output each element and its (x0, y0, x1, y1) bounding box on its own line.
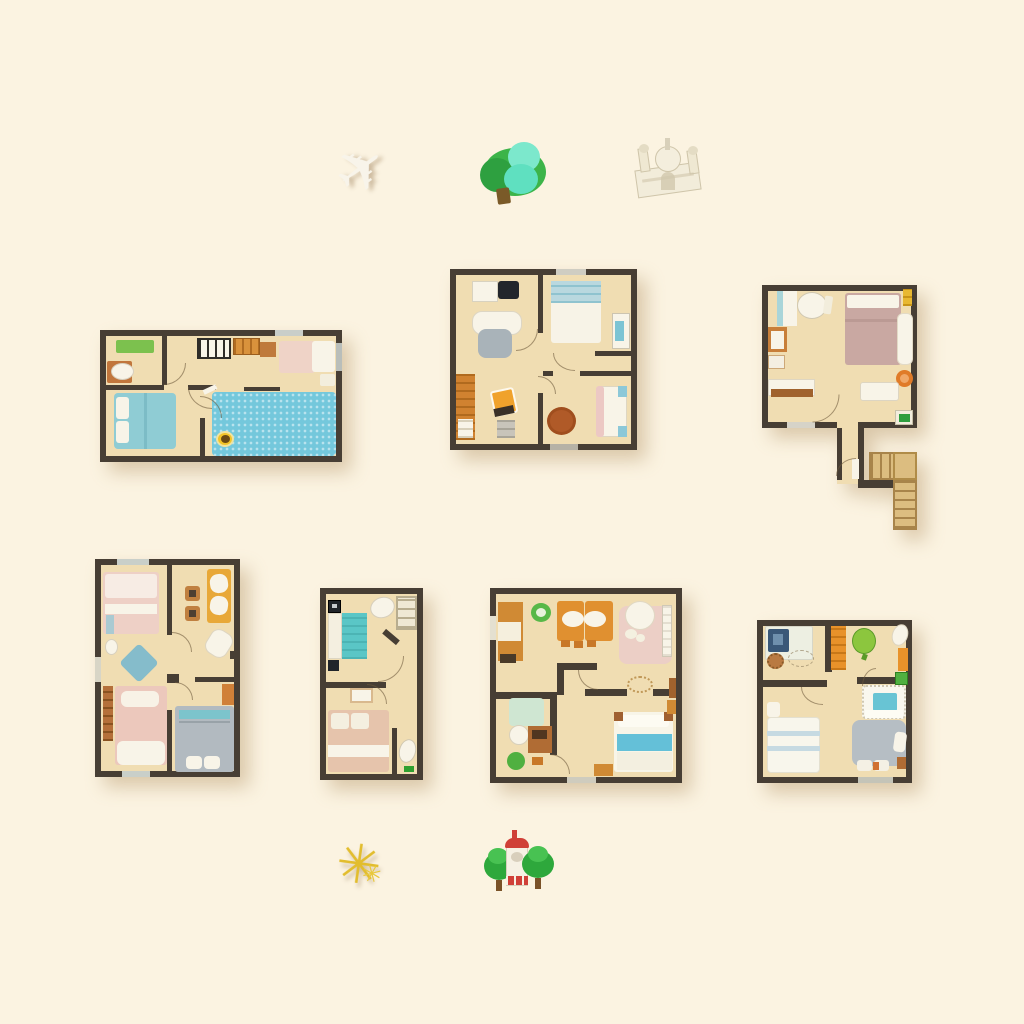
wall-top (490, 588, 682, 594)
tree-icon-trunk (496, 187, 511, 205)
bed-top-pillow (105, 574, 157, 598)
bed-pink (279, 341, 315, 373)
stool-1-mark (189, 590, 196, 597)
round-table (625, 601, 655, 630)
nightstand (594, 764, 613, 776)
desk (472, 281, 498, 302)
plan-5-narrow-studio (320, 588, 423, 780)
stool-gray (497, 420, 515, 438)
shower-stripe (777, 291, 783, 326)
village-icon-tree-right-top (528, 846, 548, 862)
wall-hall-c (244, 387, 280, 391)
plan-4-tall-two-bedroom (95, 559, 240, 777)
bath-stool (532, 757, 543, 765)
wall-divider-bottom (167, 710, 172, 771)
bath-desk-items (532, 730, 547, 739)
wall-mid-b (580, 371, 631, 376)
bed-bl-foot (117, 741, 165, 765)
bed-bl-pillow (121, 691, 159, 707)
nightstand (897, 757, 906, 769)
village-icon-flag (512, 830, 517, 839)
cabinet-left-shelf (498, 622, 521, 641)
village-icon-roof (505, 838, 529, 848)
cabinet-left-base (500, 654, 516, 663)
plan-7-square-studio (757, 620, 912, 783)
village-icon-tree-left-top (488, 848, 508, 864)
green-ball (507, 752, 525, 770)
bed-bl (767, 717, 820, 773)
sofa-gray (478, 329, 512, 358)
window-bottom (858, 777, 893, 783)
toilet (111, 363, 134, 380)
rug-brown (767, 653, 784, 669)
wall-mid-v (557, 663, 564, 695)
sketch-scribble (788, 650, 814, 667)
wall-top (320, 588, 423, 594)
bed-br-line (179, 721, 230, 723)
wall-right (417, 588, 423, 780)
wall-divider-top (167, 565, 172, 635)
bed-mid-teal (873, 693, 897, 711)
dresser-2 (260, 342, 276, 357)
palace-icon-tower-dome-left (639, 144, 649, 153)
village-icon-window (511, 852, 523, 862)
wall-right (234, 559, 240, 777)
bed-br-p1 (857, 760, 872, 771)
dresser (233, 338, 260, 355)
bed-bottom-pillow-1 (331, 713, 349, 729)
wall-left (100, 330, 106, 462)
round-chair-seat (900, 374, 909, 383)
wall-top (450, 269, 637, 275)
green-mat (404, 766, 414, 772)
bed-top-band (105, 604, 157, 614)
balloon-chair (852, 628, 876, 654)
sofa-right (897, 313, 913, 365)
wall-right-h-a (585, 689, 627, 696)
wall-left (757, 620, 763, 783)
orange-right (667, 700, 676, 714)
plant (531, 603, 551, 622)
wall-divider-bottom (392, 728, 397, 774)
bed-mauve-fold (845, 319, 901, 322)
bed-teal (342, 613, 367, 659)
wall-hall-a (106, 385, 164, 390)
window-bottom (787, 422, 815, 428)
bathtub (797, 292, 827, 319)
appliance-1-dot (332, 604, 337, 608)
appliance-2 (328, 660, 339, 671)
flower-table (547, 407, 576, 435)
pool (212, 392, 336, 456)
bed-bl-stripe-1 (767, 731, 820, 736)
window-top (275, 330, 303, 336)
wall-bottom (450, 444, 637, 450)
wall-bottom (100, 456, 342, 462)
wall-right (631, 269, 637, 450)
palace-icon-spire (665, 138, 670, 150)
wall-mid-a (543, 371, 553, 376)
cabinet-right (898, 648, 908, 671)
wardrobe (197, 338, 231, 359)
bench-pillow-1 (562, 611, 584, 627)
cabinet-right (222, 684, 234, 705)
bed-br-head-1 (614, 712, 623, 721)
green-box (895, 672, 908, 685)
bed-bottom-pillow-2 (351, 713, 369, 729)
bed-br-pillows (618, 715, 669, 727)
village-icon-base-band (506, 876, 528, 885)
wall-pool-left (200, 418, 205, 456)
plan-3-l-shaped-with-stairs (757, 275, 917, 533)
floor-plans-scene: ✈✳✳ (0, 0, 1024, 1024)
window-bottom (122, 771, 150, 777)
stool-2-mark (189, 610, 196, 617)
bed-mid-strip (865, 710, 903, 718)
printer (498, 281, 519, 299)
wall-right (676, 588, 682, 783)
bed-br-pink (596, 386, 604, 437)
stairs-steps (396, 596, 417, 630)
bed-blue-pillow-2 (116, 421, 129, 443)
bed-br-orange (873, 762, 879, 770)
bath-rug-green (509, 698, 544, 726)
airplane-icon: ✈ (323, 131, 399, 209)
village-icon-trunk-left (496, 880, 502, 891)
wall-sink (105, 639, 118, 655)
stairs-landing (893, 452, 917, 480)
bath-rug (116, 340, 154, 353)
cabinet-orange-inner (771, 331, 784, 349)
yellow-cabinet (903, 289, 912, 306)
bed-br-blue-2 (618, 426, 627, 437)
bed-blue-fold (144, 393, 147, 449)
bed-br-blue-1 (618, 386, 627, 397)
wall-bottom (320, 774, 423, 780)
nightstand (320, 374, 335, 386)
tall-cabinet-white (458, 419, 473, 438)
wall-right (906, 620, 912, 783)
wall-top (100, 330, 342, 336)
bed-blue-pillow-1 (116, 397, 129, 419)
wall-divider-bottom (538, 393, 543, 444)
wall-stairs-bottom (858, 480, 893, 488)
bed-pink-pillow (312, 341, 335, 372)
wall-stub (230, 651, 234, 659)
window-top (117, 559, 149, 565)
cabinet-left (103, 686, 113, 741)
bed-br-teal (179, 710, 230, 719)
bed-top-stripe (106, 615, 114, 634)
wall-right-stub (595, 351, 631, 356)
bed-teal-pillow (328, 613, 342, 659)
bed-br-lower (617, 752, 672, 770)
white-box (768, 355, 785, 369)
shelf-base (771, 389, 813, 397)
bench-pillow-2 (584, 611, 606, 627)
bed-mauve-pillows (847, 295, 899, 308)
table (860, 382, 899, 401)
window-left (95, 657, 101, 682)
bed-bottom-band (328, 745, 389, 757)
bed-bl-pillow (767, 702, 780, 717)
bed-br-pillow-1 (186, 756, 202, 769)
wall-mid-left (763, 680, 827, 687)
bench-stool-3 (587, 640, 596, 647)
plan-6-square-two-bed (490, 588, 682, 783)
sunflower-center (221, 435, 230, 443)
round-table-bit-2 (636, 634, 645, 642)
bench-stool-1 (561, 640, 570, 647)
window-bottom (567, 777, 596, 783)
village-icon-trunk-right (535, 878, 541, 889)
window-bottom (550, 444, 578, 450)
bed-bl-stripe-2 (767, 746, 820, 751)
window-top (556, 269, 586, 275)
bed-blanket (551, 281, 601, 303)
bed-br-teal (617, 734, 672, 751)
stairs-run-horizontal (869, 452, 895, 480)
cabinet-top (831, 626, 846, 670)
scribble-rug (627, 676, 653, 693)
wall-divider-top (538, 275, 543, 333)
bath-sink (509, 725, 529, 745)
cabinet-top-right (662, 605, 672, 657)
plan-2-square-apartment (450, 269, 637, 450)
monitor-screen (773, 634, 783, 645)
palace-icon-tower-dome-right (688, 146, 698, 155)
stairs-run-vertical (893, 480, 917, 530)
window-right (336, 343, 342, 371)
window-left (490, 616, 496, 640)
cabinet-right-mid (669, 678, 676, 698)
green-box-inner (899, 414, 910, 422)
bench-stool-2 (574, 641, 583, 648)
cabinet-right-blue (615, 321, 624, 341)
wall-mid (195, 677, 234, 682)
plan-1-wide-apartment-with-pool (100, 330, 342, 462)
bed-br-pillow-2 (204, 756, 220, 769)
